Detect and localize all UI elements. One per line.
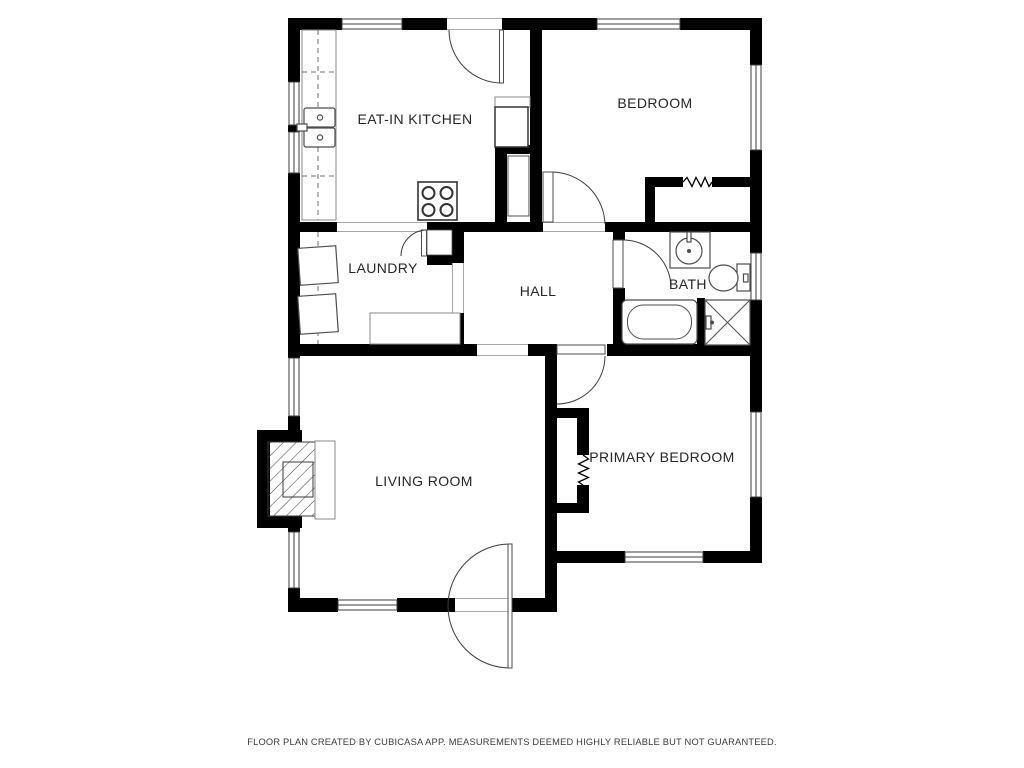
wall-segment bbox=[257, 516, 302, 528]
wall-segment bbox=[577, 485, 589, 503]
dryer bbox=[298, 294, 339, 335]
bedroom-door bbox=[543, 172, 605, 232]
refrigerator bbox=[495, 107, 528, 147]
door-swing-arc bbox=[553, 172, 605, 224]
primary-closet-sliding-door bbox=[577, 455, 589, 485]
pantry-cabinet bbox=[508, 156, 529, 216]
bathtub bbox=[622, 300, 697, 344]
bath-door bbox=[613, 240, 671, 288]
fireplace bbox=[268, 441, 335, 519]
wall-segment bbox=[402, 18, 447, 30]
wall-segment bbox=[288, 598, 338, 612]
wall-segment bbox=[495, 154, 507, 222]
wall-segment bbox=[557, 503, 589, 513]
wall-segment bbox=[750, 18, 762, 65]
wall-segment bbox=[528, 344, 557, 356]
wall-segment bbox=[288, 344, 477, 356]
wall-segment bbox=[288, 416, 300, 430]
wall-segment bbox=[530, 30, 542, 222]
wall-segment bbox=[607, 344, 762, 356]
wall-segment bbox=[750, 150, 762, 253]
wall-segment bbox=[288, 173, 300, 358]
room-label-laundry: LAUNDRY bbox=[348, 260, 418, 276]
room-label-primary-bedroom: PRIMARY BEDROOM bbox=[589, 449, 735, 465]
wall-segment bbox=[712, 177, 750, 187]
door-swing-arc bbox=[623, 240, 671, 288]
room-label-bath: BATH bbox=[669, 276, 707, 292]
wall-segment bbox=[397, 598, 455, 612]
wall-segment bbox=[605, 222, 762, 232]
toilet bbox=[709, 264, 750, 291]
room-label-eat-in-kitchen: EAT-IN KITCHEN bbox=[357, 111, 472, 127]
window-bath-right bbox=[751, 253, 761, 300]
wall-segment bbox=[613, 222, 625, 240]
laundry-counter bbox=[370, 313, 460, 344]
window-living-left-2 bbox=[289, 532, 299, 588]
back-door bbox=[447, 18, 504, 83]
wall-segment bbox=[288, 222, 337, 232]
wall-segment bbox=[680, 18, 762, 30]
window-primary-right bbox=[751, 412, 761, 497]
door-swing-arc bbox=[449, 30, 502, 83]
window-kitchen-left-1 bbox=[289, 82, 299, 125]
bedroom-closet-sliding-door bbox=[683, 177, 712, 187]
floor-plan-page: EAT-IN KITCHEN BEDROOM LAUNDRY HALL BATH… bbox=[0, 0, 1024, 768]
wall-segment bbox=[750, 497, 762, 563]
hearth bbox=[315, 441, 335, 519]
wall-segment bbox=[577, 418, 589, 455]
window-bedroom-right bbox=[751, 65, 761, 150]
front-door bbox=[448, 544, 512, 668]
refrigerator-shelf bbox=[495, 97, 530, 107]
washer bbox=[298, 246, 338, 286]
wall-segment bbox=[288, 18, 300, 82]
laundry-hall-opening bbox=[452, 263, 464, 313]
window-bedroom-top bbox=[597, 19, 680, 29]
door-swing-arc bbox=[557, 356, 605, 404]
wall-segment bbox=[697, 298, 705, 345]
wall-segment bbox=[545, 356, 557, 612]
wall-segment bbox=[557, 408, 589, 418]
floor-plan: EAT-IN KITCHEN BEDROOM LAUNDRY HALL BATH… bbox=[0, 0, 1024, 768]
wall-segment bbox=[557, 551, 625, 563]
window-primary-bottom bbox=[625, 552, 703, 562]
wall-segment bbox=[464, 222, 543, 232]
room-label-bedroom: BEDROOM bbox=[617, 95, 692, 111]
room-label-hall: HALL bbox=[520, 283, 557, 299]
wall-segment bbox=[288, 528, 300, 532]
hall-living-opening bbox=[477, 344, 528, 356]
wall-segment bbox=[502, 18, 597, 30]
bathroom-sink bbox=[670, 232, 710, 268]
room-label-living-room: LIVING ROOM bbox=[375, 473, 473, 489]
shower bbox=[705, 300, 750, 345]
window-living-left-1 bbox=[289, 358, 299, 416]
window-kitchen-top bbox=[342, 19, 402, 29]
window-kitchen-left-2 bbox=[289, 132, 299, 173]
wall-segment bbox=[452, 222, 464, 263]
primary-bedroom-door bbox=[557, 344, 607, 404]
wall-segment bbox=[645, 177, 655, 222]
window-living-bottom bbox=[338, 600, 397, 610]
stove bbox=[418, 182, 457, 220]
disclaimer-text: FLOOR PLAN CREATED BY CUBICASA APP. MEAS… bbox=[247, 737, 777, 747]
